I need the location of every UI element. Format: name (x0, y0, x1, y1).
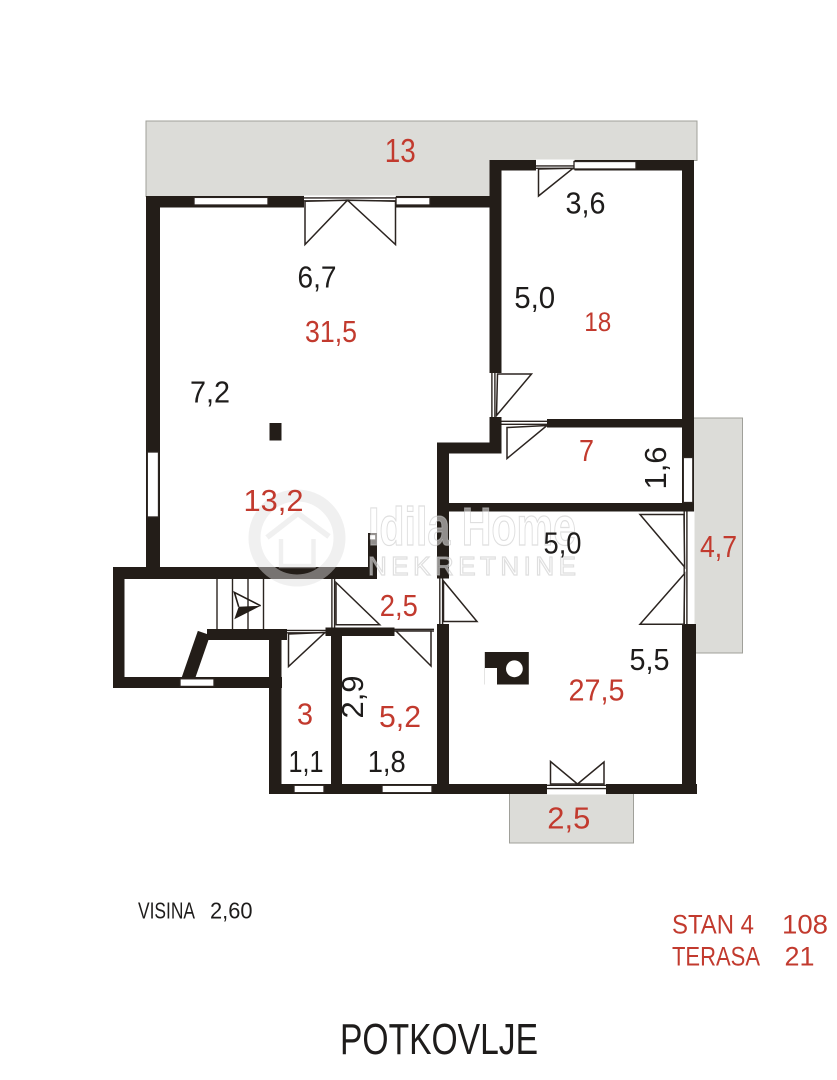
svg-text:13,2: 13,2 (244, 483, 304, 518)
svg-text:18: 18 (584, 307, 611, 337)
svg-text:7: 7 (579, 433, 594, 468)
svg-text:21: 21 (785, 942, 815, 972)
svg-text:7,2: 7,2 (190, 374, 230, 409)
svg-text:3,6: 3,6 (566, 185, 606, 220)
svg-text:TERASA: TERASA (672, 942, 760, 972)
svg-text:1,1: 1,1 (289, 744, 324, 779)
svg-text:2,60: 2,60 (210, 898, 253, 924)
svg-text:13: 13 (385, 132, 416, 169)
svg-text:1,6: 1,6 (638, 446, 673, 489)
svg-text:4,7: 4,7 (700, 529, 737, 564)
svg-text:2,5: 2,5 (547, 801, 590, 836)
svg-text:POTKOVLJE: POTKOVLJE (340, 1015, 538, 1064)
svg-text:1,8: 1,8 (368, 744, 406, 779)
svg-text:2,5: 2,5 (380, 588, 418, 623)
svg-text:31,5: 31,5 (305, 314, 357, 349)
svg-text:VISINA: VISINA (138, 898, 195, 924)
svg-text:STAN 4: STAN 4 (672, 909, 754, 939)
svg-text:5,0: 5,0 (514, 280, 555, 315)
svg-text:2,9: 2,9 (335, 675, 370, 718)
svg-text:108: 108 (782, 909, 828, 939)
svg-text:3: 3 (297, 697, 313, 732)
svg-text:5,5: 5,5 (630, 642, 670, 677)
svg-text:27,5: 27,5 (569, 672, 625, 707)
svg-text:5,2: 5,2 (379, 699, 421, 734)
svg-text:5,0: 5,0 (544, 526, 582, 561)
svg-text:6,7: 6,7 (298, 260, 337, 295)
